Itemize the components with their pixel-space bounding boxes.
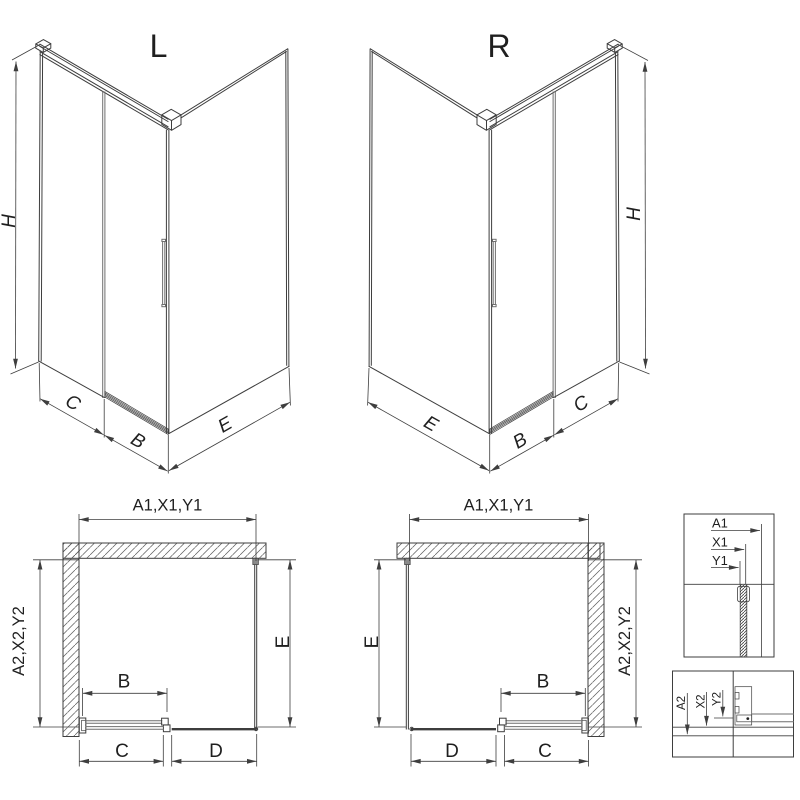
guide-block (162, 718, 169, 725)
door-bottom-rail (752, 714, 794, 722)
left-glass-edge (39, 52, 43, 361)
bottom-guide (86, 727, 163, 730)
side-panel-left-edge (369, 49, 372, 366)
guide-block (163, 725, 170, 732)
technical-drawing-page: L (0, 0, 800, 800)
plan-view-right: A1,X1,Y1 E A2,X2,Y2 B D C (362, 497, 642, 767)
side-panel-right-edge (286, 49, 289, 366)
door-handle (162, 239, 166, 306)
side-glass (255, 558, 257, 729)
front-bottom-edge (554, 361, 620, 397)
detail-label-a2: A2 (676, 696, 688, 710)
dim-label-d: D (445, 741, 459, 762)
right-glass-edge (615, 52, 619, 361)
bottom-track (105, 391, 168, 434)
corner-post (166, 130, 169, 433)
shower-enclosure-drawing: L (0, 0, 800, 800)
wall-profile-section (737, 584, 749, 657)
detail-label-x2: X2 (695, 694, 707, 708)
iso-view-left: L (0, 28, 290, 474)
sliding-door-glass (506, 721, 582, 724)
roller-mechanism (735, 687, 752, 725)
detail-label-y2: Y2 (712, 692, 724, 706)
iso-left-title: L (150, 28, 168, 64)
dim-label-c: C (62, 391, 85, 416)
detail-box-vertical-section: A2 X2 Y2 (673, 671, 794, 757)
bottom-track (490, 391, 553, 434)
guide-block (498, 725, 505, 732)
door-handle (493, 239, 497, 306)
wall-profile (79, 718, 86, 733)
dim-label-e: E (215, 413, 237, 438)
bottom-guide (504, 727, 581, 730)
dim-label-c: C (115, 741, 129, 762)
dim-label-e: E (273, 636, 294, 649)
detail-label-y1: Y1 (712, 553, 728, 568)
dim-label-h: H (0, 214, 20, 228)
dim-label-a2-group: A2,X2,Y2 (10, 606, 28, 676)
wall-left (63, 543, 79, 737)
iso-view-right: R H E B C (368, 28, 650, 474)
door-leading-edge (553, 92, 555, 398)
guide-block (500, 718, 507, 725)
door-leading-edge (103, 92, 105, 398)
wall-profile (582, 718, 589, 733)
side-panel-top-edge (181, 49, 288, 118)
dim-label-e: E (362, 636, 383, 649)
wall-top (63, 543, 266, 558)
dim-label-a2-group: A2,X2,Y2 (616, 606, 634, 676)
wall-top (397, 543, 600, 558)
dim-label-h: H (624, 207, 645, 221)
dim-label-e: E (420, 412, 442, 437)
dim-label-c: C (570, 392, 593, 417)
detail-label-a1: A1 (712, 516, 728, 531)
wall-right (588, 543, 604, 737)
sliding-door-glass (86, 721, 162, 724)
side-glass (406, 558, 408, 729)
plan-left-dimensions: A1,X1,Y1 A2,X2,Y2 E B C D (10, 497, 296, 767)
dim-label-d: D (209, 741, 223, 762)
detail-label-x1: X1 (712, 535, 728, 550)
plan-view-left: A1,X1,Y1 A2,X2,Y2 E B C D (10, 497, 296, 767)
dim-label-c: C (538, 741, 552, 762)
iso-left-dimensions: H C B E (0, 45, 290, 474)
dim-label-b: B (537, 672, 550, 693)
iso-right-title: R (487, 28, 510, 64)
detail-box-horizontal-section: A1 X1 Y1 (684, 514, 774, 657)
dim-label-a1-group: A1,X1,Y1 (133, 497, 203, 515)
side-panel-top-edge (370, 49, 477, 118)
dim-label-a1-group: A1,X1,Y1 (464, 497, 534, 515)
dim-label-b: B (118, 672, 131, 693)
corner-post (489, 130, 492, 433)
